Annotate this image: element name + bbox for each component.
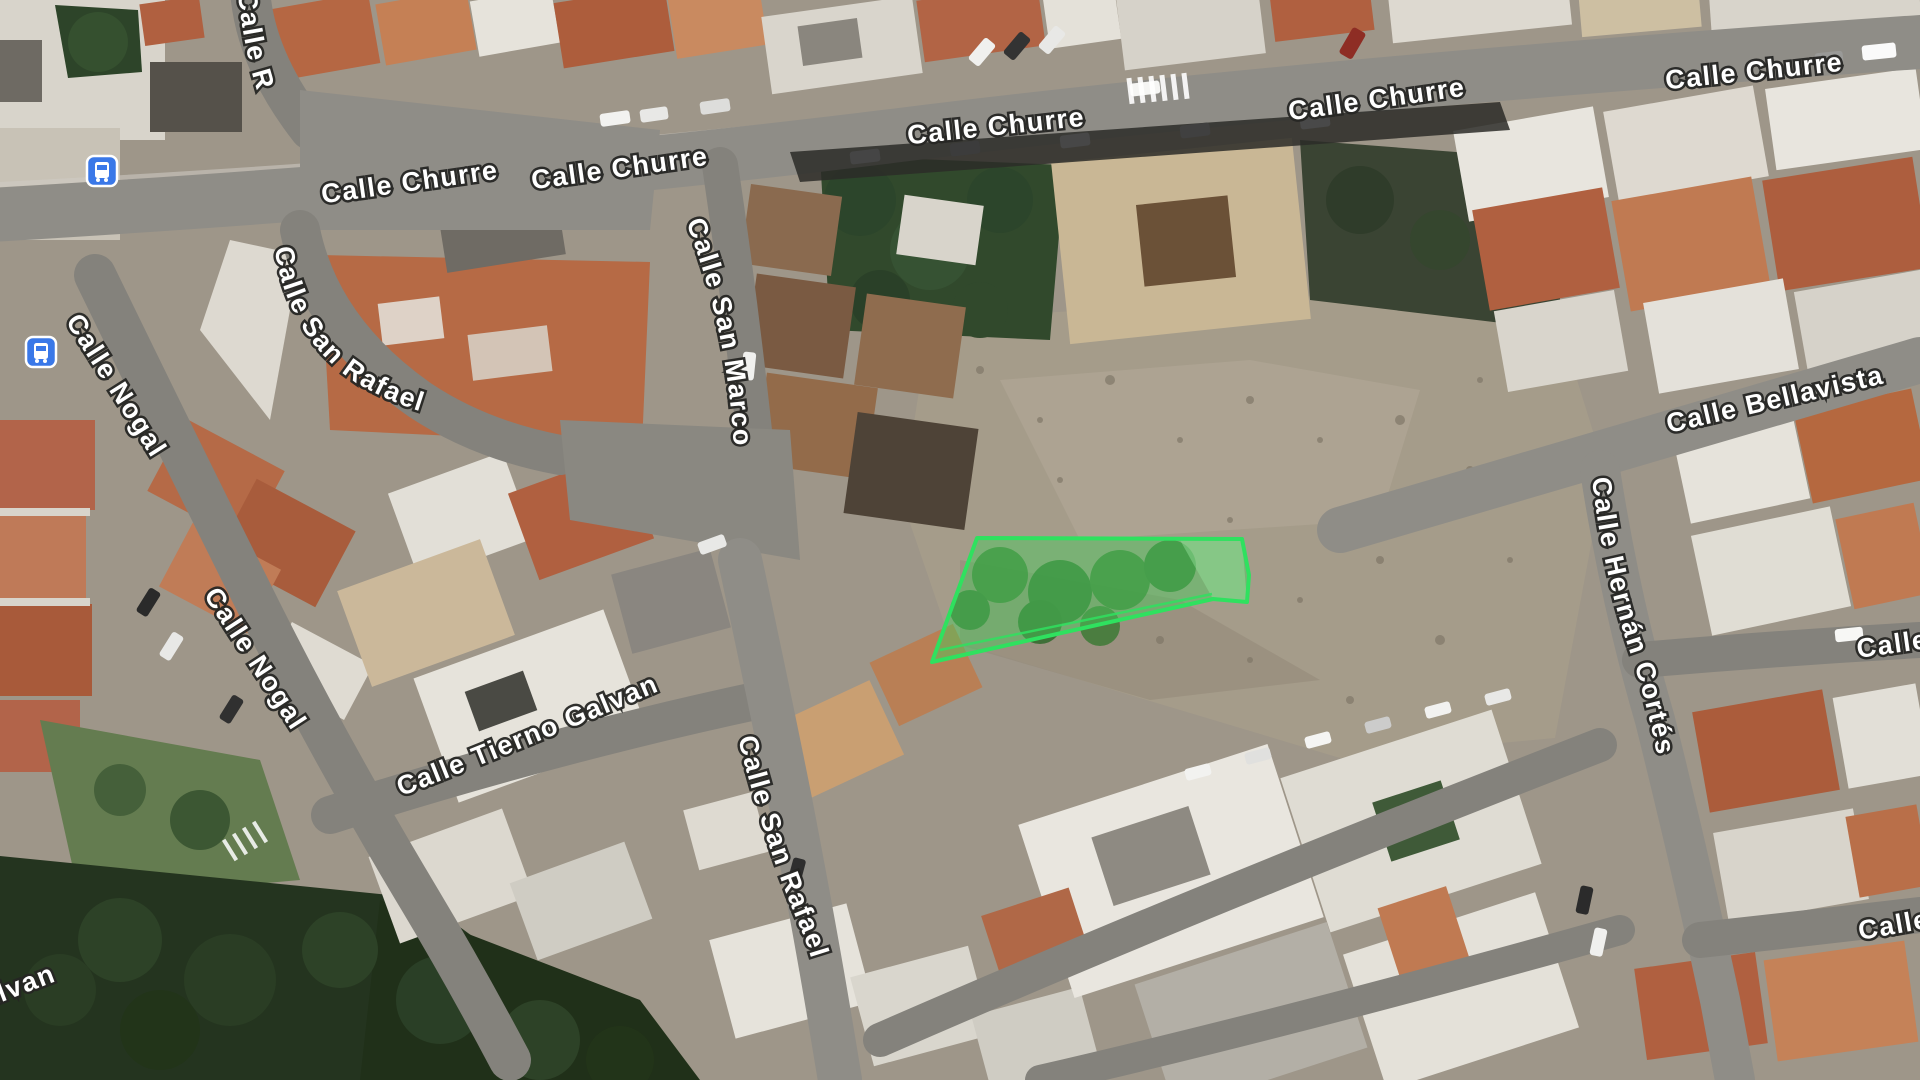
satellite-imagery xyxy=(0,0,1920,1080)
map-viewport[interactable]: Calle R Calle Churre Calle Churre Calle … xyxy=(0,0,1920,1080)
bus-stop-icon-2[interactable] xyxy=(26,337,56,367)
bus-stop-icon-1[interactable] xyxy=(87,156,117,186)
